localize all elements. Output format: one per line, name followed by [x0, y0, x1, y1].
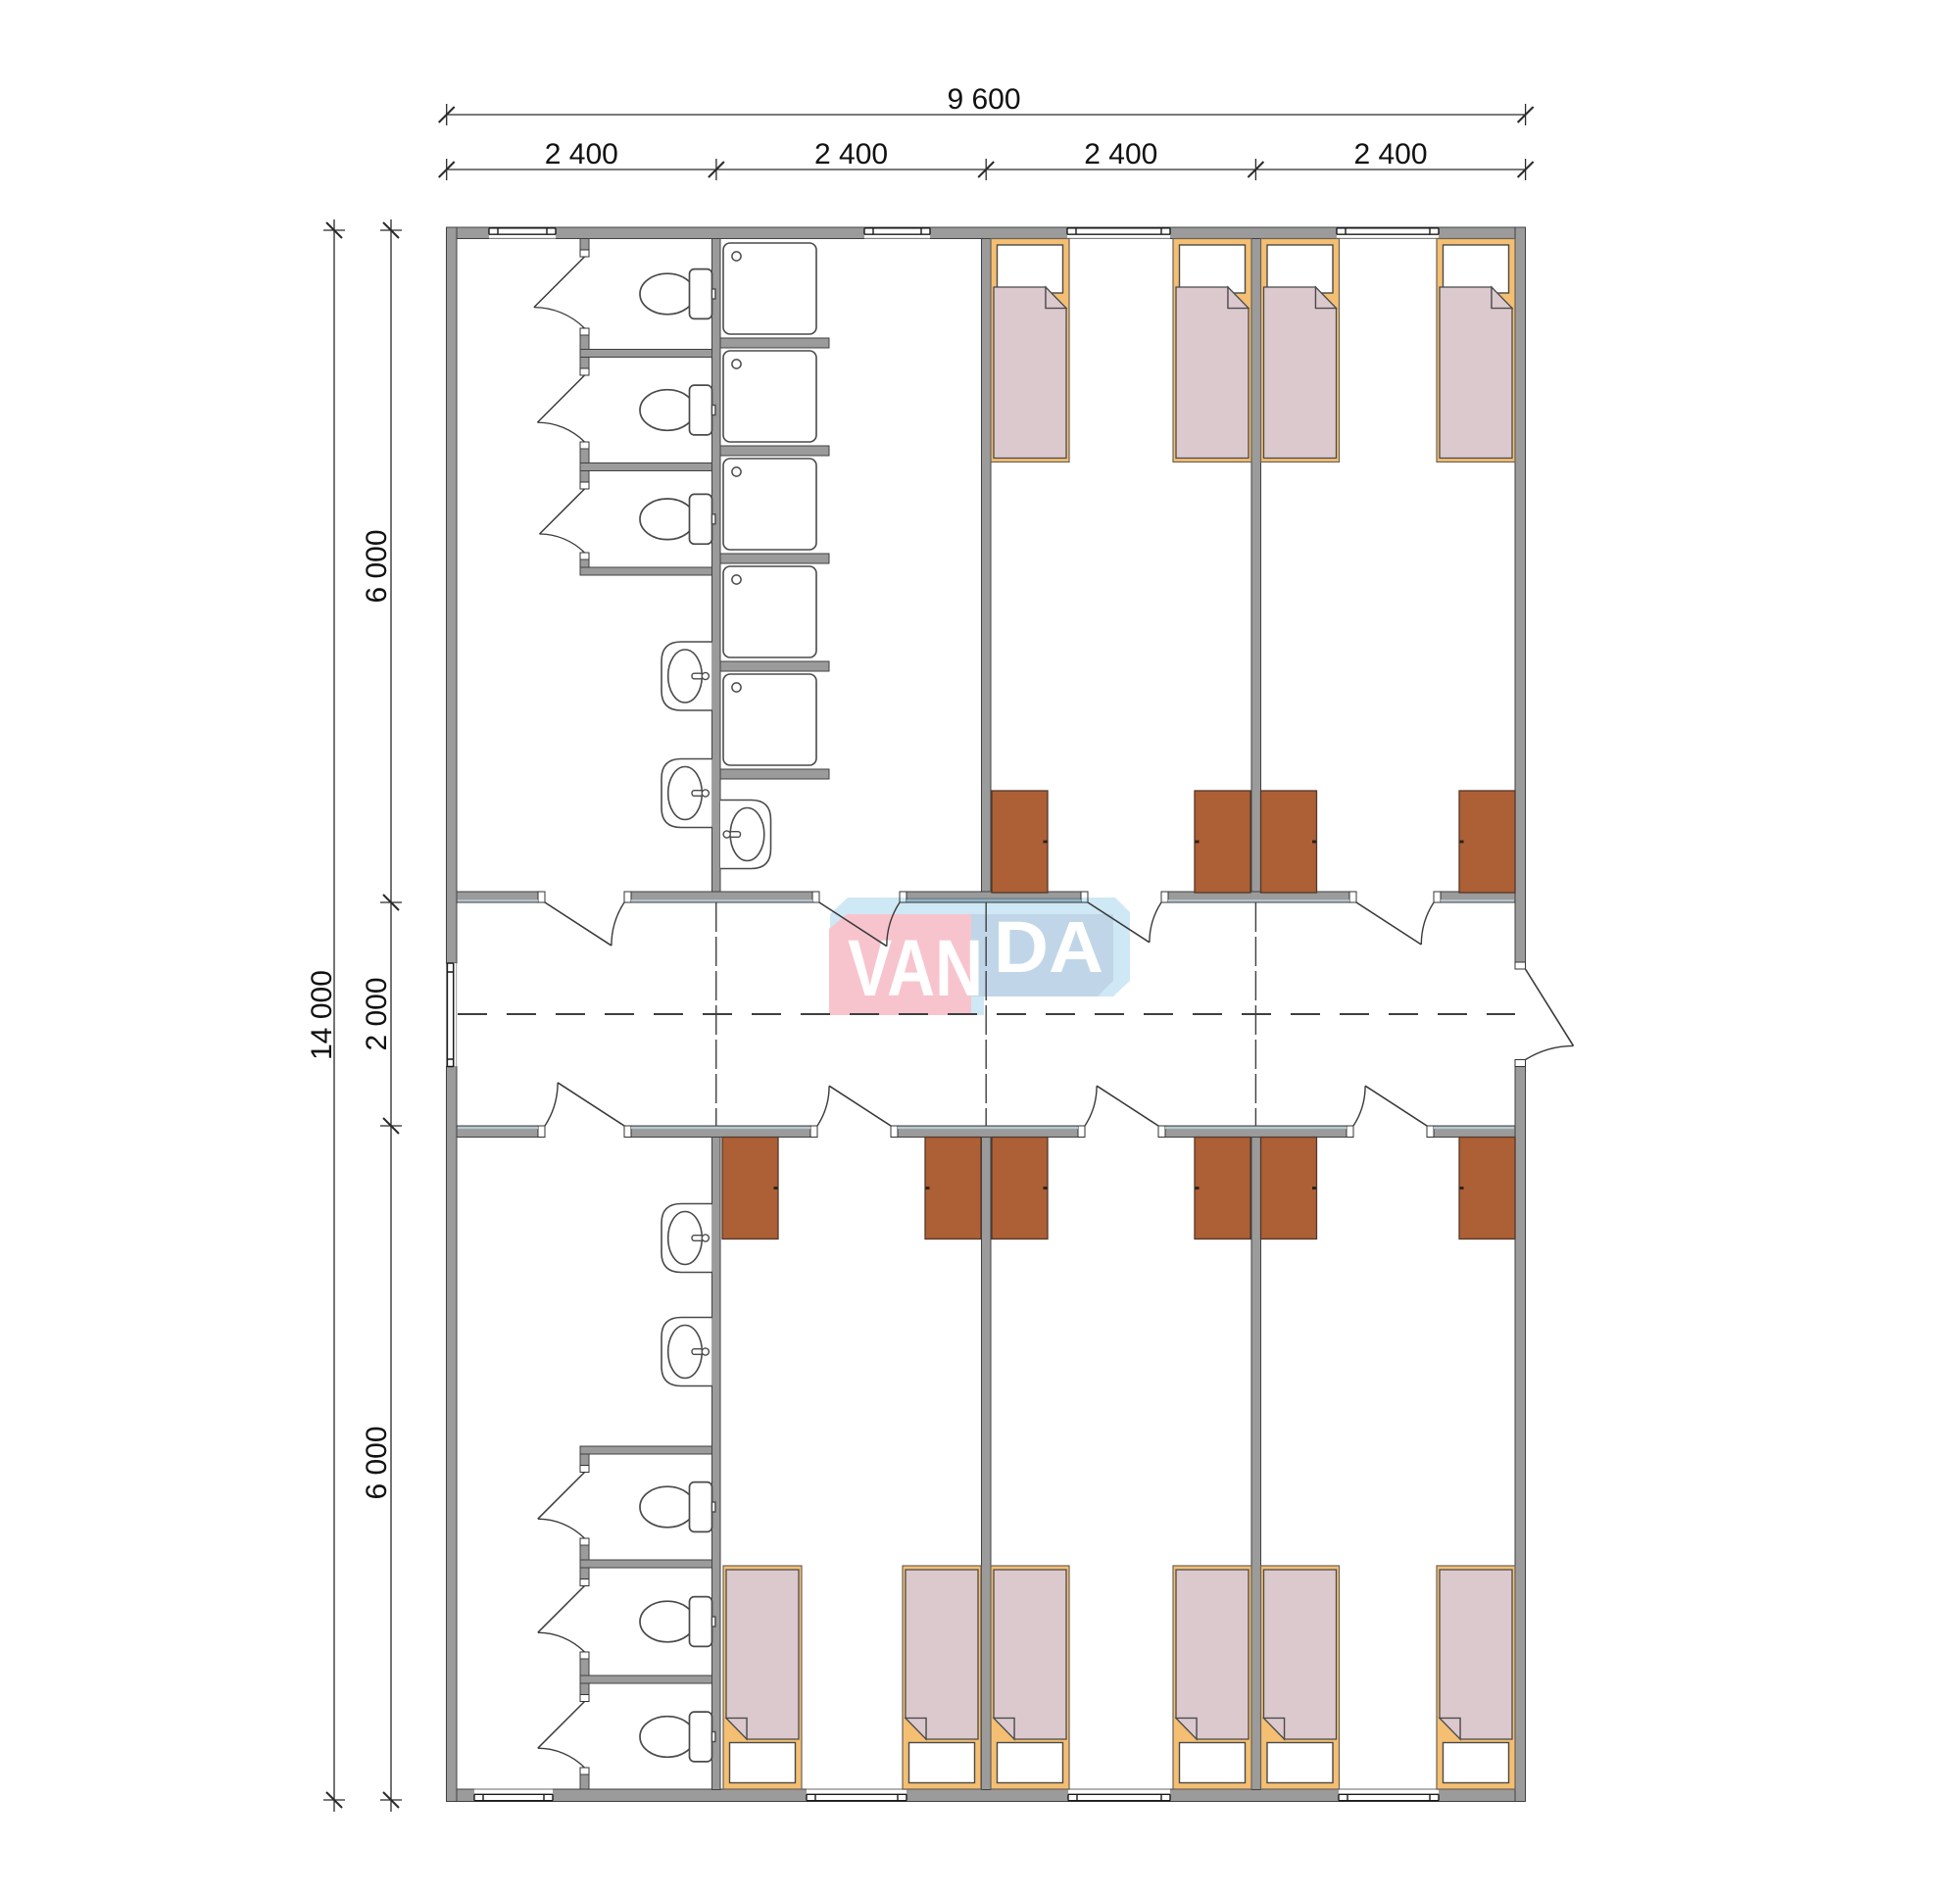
svg-text:2 400: 2 400	[814, 138, 888, 170]
svg-text:DA: DA	[994, 906, 1103, 988]
svg-text:2 400: 2 400	[545, 138, 618, 170]
svg-text:6 000: 6 000	[361, 529, 393, 603]
svg-text:2 000: 2 000	[361, 977, 393, 1050]
svg-text:2 400: 2 400	[1353, 138, 1427, 170]
svg-text:9 600: 9 600	[947, 83, 1020, 116]
svg-text:14 000: 14 000	[306, 970, 338, 1060]
svg-text:6 000: 6 000	[361, 1426, 393, 1499]
svg-text:2 400: 2 400	[1084, 138, 1157, 170]
svg-text:VAN: VAN	[848, 924, 983, 1013]
